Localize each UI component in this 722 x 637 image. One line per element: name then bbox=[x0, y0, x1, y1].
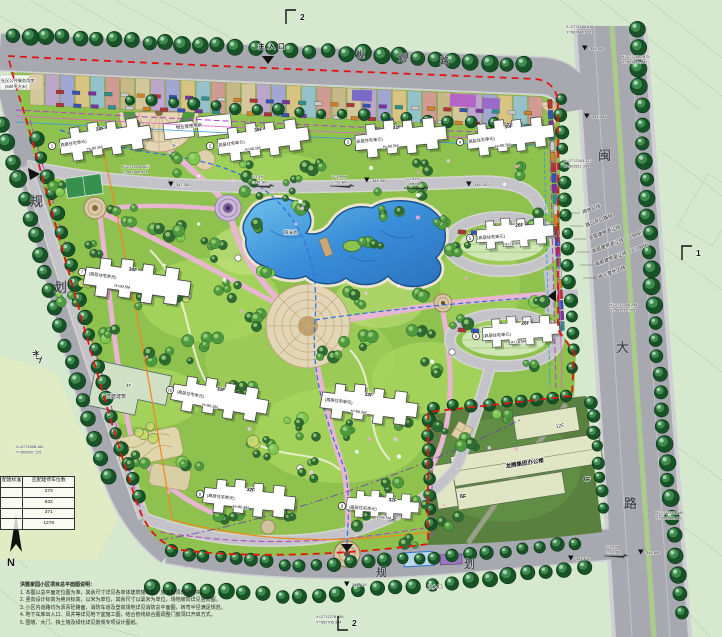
coordinate-label: Y=502685.646 bbox=[656, 516, 681, 521]
slope-label: i=-3.99% bbox=[332, 175, 347, 179]
flower bbox=[417, 171, 419, 173]
coordinate-label: X=2772534.625 bbox=[122, 164, 150, 169]
car bbox=[550, 152, 555, 161]
car bbox=[121, 93, 129, 97]
site-label: 已建建筑 bbox=[106, 393, 126, 400]
coordinate-label: Y=502384.551 bbox=[122, 170, 147, 175]
car bbox=[56, 90, 64, 94]
road-name-char: 闽 bbox=[598, 148, 612, 163]
road-name-char: 划 bbox=[464, 557, 476, 571]
flower bbox=[443, 504, 446, 507]
car bbox=[91, 105, 99, 109]
slope-length: L=92.6M bbox=[332, 181, 346, 185]
car bbox=[347, 103, 355, 107]
elevation-value: 348.000 bbox=[590, 46, 605, 51]
coordinate-label: X=2772582.875 bbox=[622, 54, 650, 59]
flower bbox=[444, 425, 448, 429]
coordinate-label: Y=502853.342 bbox=[622, 60, 647, 65]
car bbox=[553, 195, 558, 204]
slope-length: L=92.6M bbox=[606, 551, 620, 555]
coordinate-label: X=2772143.180 bbox=[656, 510, 684, 515]
car bbox=[508, 110, 516, 114]
unit-floors: 32F bbox=[392, 124, 401, 131]
road-name-char: 路 bbox=[624, 496, 638, 511]
general-notes: 洪雅家园小区项目总平面图说明： 1. 本图以总平面定位图为准，其余尺寸详见各单体… bbox=[20, 582, 365, 627]
car bbox=[298, 101, 306, 105]
elevation-value: 346.300 bbox=[372, 178, 387, 183]
site-label: 次入口 bbox=[428, 583, 443, 591]
flower bbox=[447, 159, 450, 162]
flower bbox=[503, 183, 506, 186]
coordinate-label: Y=502597.125 bbox=[16, 450, 41, 455]
table-row: 273 bbox=[1, 487, 75, 498]
car bbox=[108, 105, 116, 109]
car bbox=[492, 110, 500, 114]
note-item: 1. 本图以总平面定位图为准，其余尺寸详见各单体建筑施工图，施工前须现场核实。 bbox=[20, 590, 365, 598]
car bbox=[218, 97, 226, 101]
flower bbox=[300, 206, 304, 210]
flower bbox=[397, 284, 400, 287]
note-item: 2. 竖向设计标高为绝对标高，以米为单位，其余尺寸以毫米为单位，场地坡向详见竖向… bbox=[20, 597, 365, 605]
car bbox=[143, 107, 151, 111]
car bbox=[264, 112, 272, 116]
kiosk bbox=[450, 93, 477, 107]
car bbox=[395, 105, 403, 109]
car bbox=[411, 106, 419, 110]
car bbox=[137, 94, 145, 98]
note-item: 3. 小区内道路均为沥青砼路面，消防车道及登高场地详见消防总平面图，转弯半径满足… bbox=[20, 605, 365, 613]
car bbox=[126, 106, 134, 110]
car bbox=[548, 99, 553, 108]
unit-floors: 26F bbox=[515, 222, 524, 229]
slope-length: L=34.3M bbox=[252, 181, 266, 185]
coordinate-label: Y=502811.354 bbox=[564, 164, 590, 169]
flower bbox=[368, 438, 372, 442]
site-label: 4F bbox=[126, 383, 132, 388]
elevation-value: 347.300 bbox=[176, 182, 191, 187]
flower bbox=[393, 437, 397, 441]
coordinate-label: X=2772398.162 bbox=[16, 444, 44, 449]
site-label: 6F bbox=[584, 477, 591, 483]
car bbox=[160, 108, 168, 112]
flower bbox=[309, 470, 313, 474]
flower bbox=[355, 450, 359, 454]
kiosk bbox=[352, 90, 372, 102]
unit-floors: 32F bbox=[364, 392, 373, 399]
flower bbox=[298, 200, 302, 204]
fountain-plaza bbox=[215, 195, 241, 221]
car bbox=[363, 104, 371, 108]
flower bbox=[416, 193, 420, 197]
road-name-char: 划 bbox=[398, 52, 408, 63]
table-row: 632 bbox=[1, 498, 75, 509]
parking-allocation-table: 配建标准 应配建停车位数 273 632 371 1276 bbox=[0, 476, 75, 530]
site-label: 游泳池 bbox=[284, 229, 298, 236]
car bbox=[250, 99, 258, 103]
road-name-char: 大 bbox=[616, 340, 630, 355]
flower bbox=[397, 454, 401, 458]
table-row: 371 bbox=[1, 508, 75, 519]
section-marker-number: 2 bbox=[300, 12, 305, 22]
flower bbox=[364, 291, 367, 294]
car bbox=[460, 108, 468, 112]
flower bbox=[167, 491, 170, 494]
car bbox=[551, 163, 556, 172]
unit-floors: 26F bbox=[521, 320, 530, 327]
car bbox=[201, 97, 209, 101]
flower bbox=[223, 278, 227, 282]
unit-floors: 30F bbox=[504, 123, 513, 130]
car bbox=[234, 98, 242, 102]
car bbox=[72, 91, 80, 95]
flower bbox=[146, 355, 149, 358]
car bbox=[105, 92, 113, 96]
slope-label: i=1.0% bbox=[606, 545, 618, 549]
site-label: (600平方米) bbox=[5, 83, 28, 90]
flower bbox=[487, 446, 491, 450]
car bbox=[443, 107, 451, 111]
road-name-char: 路 bbox=[440, 55, 450, 66]
car bbox=[476, 109, 484, 113]
flower bbox=[239, 309, 242, 312]
road-name-char: 规 bbox=[30, 194, 44, 209]
car bbox=[282, 100, 290, 104]
car bbox=[455, 121, 463, 125]
car bbox=[552, 173, 557, 182]
car bbox=[56, 103, 64, 107]
car bbox=[331, 102, 339, 106]
elevation-value: 344.045 bbox=[592, 114, 607, 119]
unit-floors: 32F bbox=[388, 497, 397, 504]
slope-length: L=95.0M bbox=[406, 183, 420, 187]
table-row: 1276 bbox=[1, 519, 75, 530]
flower bbox=[515, 165, 518, 168]
flower bbox=[197, 222, 200, 225]
flower bbox=[294, 222, 297, 225]
road-name-char: 划 bbox=[54, 280, 68, 295]
elevation-value: 345.610 bbox=[576, 556, 591, 561]
flower bbox=[308, 285, 311, 288]
coordinate-label: X=2772344.284 bbox=[610, 302, 638, 307]
flower bbox=[515, 447, 518, 450]
residential-master-plan-drawing: 1(高层住宅单元)30FH=90.5M2(高层住宅单元)30FH=90.5M3(… bbox=[0, 0, 722, 637]
table-header: 配建标准 bbox=[1, 477, 23, 488]
elevation-value: 346.690 bbox=[646, 550, 661, 555]
table-header: 应配建停车位数 bbox=[23, 477, 75, 488]
car bbox=[88, 91, 96, 95]
kiosk bbox=[482, 98, 501, 110]
flower bbox=[247, 427, 251, 431]
car bbox=[427, 107, 435, 111]
car bbox=[558, 300, 563, 309]
slope-label: i=3.3% bbox=[252, 175, 264, 179]
site-label: 社区公共服务用房 bbox=[1, 77, 35, 84]
plan-svg: 1(高层住宅单元)30FH=90.5M2(高层住宅单元)30FH=90.5M3(… bbox=[0, 0, 722, 637]
car bbox=[266, 99, 274, 103]
coordinate-label: Y=502480.832 bbox=[566, 30, 591, 35]
road-name-char: 规 bbox=[356, 49, 366, 60]
flower bbox=[274, 191, 277, 194]
unit-floors: 32F bbox=[246, 487, 255, 494]
slope-label: i=1.91% bbox=[406, 177, 420, 181]
notes-title: 洪雅家园小区项目总平面图说明： bbox=[20, 582, 365, 590]
car bbox=[379, 105, 387, 109]
flower bbox=[369, 166, 373, 170]
car bbox=[552, 184, 557, 193]
flower bbox=[430, 360, 434, 364]
car bbox=[548, 110, 553, 119]
section-marker-number: 1 bbox=[696, 248, 701, 258]
flower bbox=[197, 175, 200, 178]
flower bbox=[231, 179, 235, 183]
note-item: 5. 围墙、大门、挡土墙及绿化详见景观专项设计图纸。 bbox=[20, 620, 365, 628]
car bbox=[559, 311, 564, 320]
unit-floors: 30F bbox=[254, 127, 263, 134]
note-item: 4. 地下车库出入口、风井等详见地下室施工图，结合管线综合图调整门窗洞口开启方式… bbox=[20, 612, 365, 620]
coordinate-label: X=2772780.616 bbox=[566, 24, 594, 29]
car bbox=[314, 102, 322, 106]
car bbox=[524, 111, 532, 115]
site-label: N bbox=[7, 557, 15, 569]
road-name-char: 规 bbox=[376, 565, 388, 579]
elevation-value: 346.100 bbox=[474, 182, 489, 187]
flower bbox=[163, 263, 165, 265]
site-label: 6F bbox=[460, 494, 467, 500]
car bbox=[351, 116, 359, 120]
unit-floors: 30F bbox=[128, 267, 137, 274]
coordinate-label: X=2772343.227 bbox=[564, 158, 592, 163]
car bbox=[74, 104, 82, 108]
flower bbox=[465, 277, 468, 280]
car bbox=[458, 230, 466, 234]
flower bbox=[416, 215, 420, 219]
coordinate-label: Y=502616.705 bbox=[610, 308, 635, 313]
car bbox=[178, 108, 186, 112]
